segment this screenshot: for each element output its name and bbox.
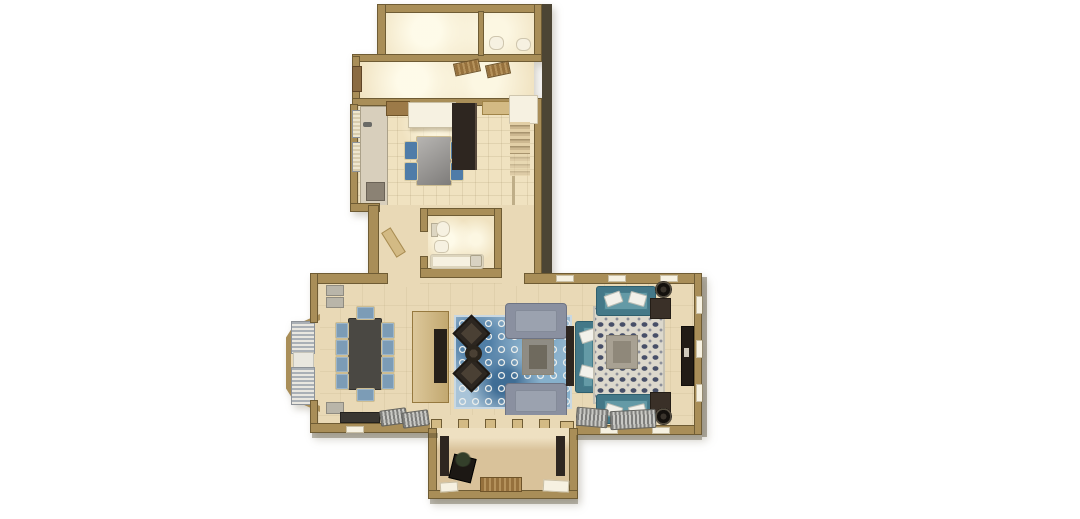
shadow-bottom-left	[312, 433, 438, 438]
porch-step-mat-right	[543, 479, 570, 492]
powder-toilet	[489, 36, 504, 50]
kitchen-upper-cabinet-tan	[482, 101, 510, 115]
kitchen-sink	[363, 122, 372, 127]
porch-doormat	[480, 477, 522, 492]
staircase-treads-fade	[510, 154, 530, 176]
porch-step-mat-left	[440, 481, 459, 492]
middle-wing-wall-right	[534, 98, 542, 275]
floorplan-render	[0, 0, 1080, 519]
family-lounger-1	[575, 407, 609, 429]
shadow-bottom-right	[576, 435, 702, 440]
dining-chair-head-bottom	[356, 388, 375, 402]
lower-wing-wall-left	[368, 205, 379, 277]
dining-sideboard	[340, 412, 380, 423]
tv-hutch-screen	[434, 329, 447, 383]
bathroom-wall-top	[420, 208, 502, 216]
family-lounger-2	[610, 409, 657, 430]
dining-chair-l2	[335, 339, 349, 356]
sitting-settee-top	[505, 303, 567, 339]
dining-chair-r3	[381, 356, 395, 373]
sitting-round-ottoman	[465, 345, 482, 362]
porch-post-right	[556, 436, 565, 476]
shadow-porch-bottom	[430, 499, 578, 504]
powder-room-divider-wall	[478, 11, 484, 56]
corridor-opening-floor	[502, 270, 524, 286]
stair-landing	[509, 95, 538, 124]
dining-table	[348, 318, 382, 390]
bathroom-toilet	[436, 221, 450, 237]
hall-opening-floor	[388, 273, 420, 287]
sitting-console-table	[566, 326, 574, 386]
family-media-console-detail	[684, 348, 689, 357]
family-coffee-table	[606, 335, 638, 369]
entry-door	[352, 66, 362, 92]
family-side-table-top	[650, 298, 671, 319]
pantry-cabinet	[452, 103, 477, 170]
window-top-2	[608, 275, 626, 282]
sitting-coffee-table	[522, 339, 554, 375]
dining-floor-mat	[346, 426, 364, 433]
breakfast-chair-2	[404, 162, 418, 181]
family-planter-top	[655, 281, 672, 298]
family-planter-bottom	[655, 408, 672, 425]
breakfast-chair-1	[404, 141, 418, 160]
window-bottom-2	[652, 427, 670, 434]
dining-radiator-2	[326, 297, 344, 308]
bay-curtain-upper	[291, 321, 315, 354]
breakfast-table	[416, 136, 452, 186]
mudroom-wall-bottom	[352, 54, 542, 62]
floorplan-canvas	[0, 0, 1080, 519]
kitchen-wall-cabinet	[386, 101, 410, 116]
dining-chair-r2	[381, 339, 395, 356]
family-sofa-top	[596, 286, 656, 316]
staircase-treads	[510, 122, 530, 154]
porch-wall-left	[428, 428, 437, 496]
powder-sink	[516, 38, 531, 51]
living-wall-top-left	[310, 273, 388, 284]
mudroom-wall-top	[377, 4, 542, 13]
dining-chair-r1	[381, 322, 395, 339]
bathroom-wall-bottom	[420, 268, 502, 278]
kitchen-island	[408, 102, 456, 128]
dining-radiator-1	[326, 285, 344, 296]
east-wall-shadow	[542, 4, 552, 282]
bathroom-sink	[434, 240, 449, 253]
dining-chair-l4	[335, 373, 349, 390]
porch-plant	[454, 452, 472, 467]
sitting-settee-bottom	[505, 383, 567, 419]
shadow-right-wall	[702, 277, 707, 437]
dining-chair-l1	[335, 322, 349, 339]
living-wall-left-upper	[310, 273, 318, 323]
dining-chair-l3	[335, 356, 349, 373]
bathroom-wall-left-upper	[420, 208, 428, 232]
bathroom-hamper	[470, 255, 482, 267]
dining-chair-head-top	[356, 306, 375, 320]
window-top-1	[556, 275, 574, 282]
porch-post-left	[440, 436, 449, 476]
kitchen-range	[366, 182, 385, 201]
dining-chair-r4	[381, 373, 395, 390]
